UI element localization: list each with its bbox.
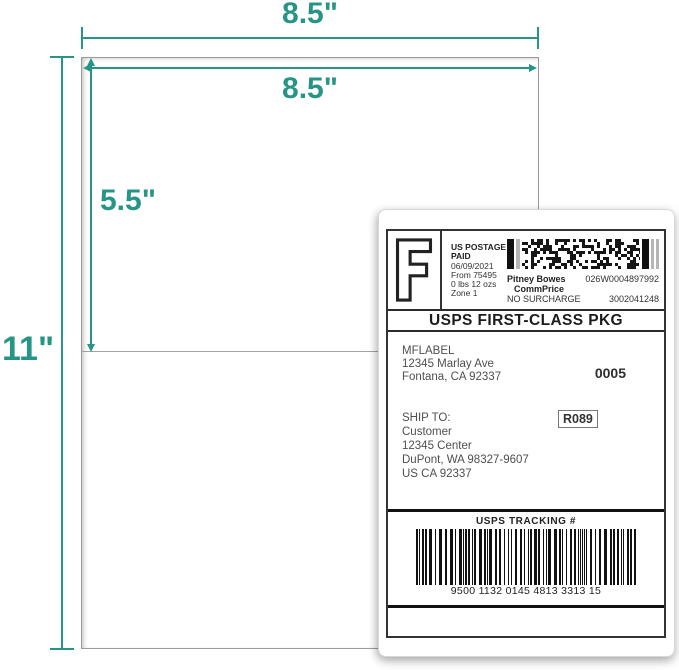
first-class-f-icon <box>388 231 442 309</box>
account-number: 3002041248 <box>609 294 659 304</box>
label-footer-blank <box>388 608 664 636</box>
tracking-barcode <box>416 529 636 585</box>
label-height-dimension-line <box>90 64 92 346</box>
from-street: 12345 Marlay Ave <box>402 358 501 371</box>
indicia-barcode <box>507 239 659 269</box>
meter-number: 026W0004897992 <box>585 274 659 284</box>
from-address: MFLABEL 12345 Marlay Ave Fontana, CA 923… <box>402 345 501 384</box>
service-class-band: USPS FIRST-CLASS PKG <box>388 309 664 332</box>
sheet-width-dimension-line <box>82 37 538 39</box>
barcode-bar <box>516 239 520 269</box>
tracking-number: 9500 1132 0145 4813 3313 15 <box>388 585 664 597</box>
sheet-height-dimension-label: 11" <box>2 330 54 369</box>
tracking-section: USPS TRACKING # 9500 1132 0145 4813 3313… <box>388 509 664 608</box>
meter-info: Pitney Bowes 026W0004897992 CommPrice NO… <box>507 274 659 304</box>
sheet-width-dimension-label: 8.5" <box>82 0 538 31</box>
surcharge-note: NO SURCHARGE <box>507 294 581 304</box>
shipping-label-border: US POSTAGE PAID 06/09/2021 From 75495 0 … <box>386 229 666 638</box>
batch-number: 0005 <box>595 365 626 381</box>
arrowhead-right-icon <box>529 64 537 72</box>
label-width-dimension-label: 8.5" <box>82 72 538 106</box>
label-width-dimension-line <box>88 67 530 69</box>
barcode-bar <box>656 239 659 269</box>
from-city: Fontana, CA 92337 <box>402 371 501 384</box>
label-height-dimension-label: 5.5" <box>100 184 156 218</box>
dimension-tick <box>537 27 539 49</box>
ship-to-city: DuPont, WA 98327-9607 <box>402 453 529 467</box>
arrowhead-down-icon <box>87 344 95 352</box>
barcode-bar <box>642 239 649 269</box>
dimension-tick <box>50 56 74 58</box>
ship-to-country: US CA 92337 <box>402 467 529 481</box>
product-illustration: 8.5" 11" 8.5" 5.5" US POSTAGE PAID <box>0 0 679 670</box>
service-class-label: USPS FIRST-CLASS PKG <box>429 312 623 330</box>
indicia-meter-block: Pitney Bowes 026W0004897992 CommPrice NO… <box>504 231 664 309</box>
ship-to-address: SHIP TO: Customer 12345 Center DuPont, W… <box>402 411 529 481</box>
from-name: MFLABEL <box>402 345 501 358</box>
route-code-badge: R089 <box>558 410 598 428</box>
carrier-name: Pitney Bowes <box>507 274 566 284</box>
sheet-height-dimension-line <box>61 57 63 649</box>
shipping-label-card: US POSTAGE PAID 06/09/2021 From 75495 0 … <box>378 209 675 657</box>
ship-to-name: Customer <box>402 425 529 439</box>
barcode-noise-field <box>522 239 640 269</box>
postage-details: US POSTAGE PAID 06/09/2021 From 75495 0 … <box>442 231 504 309</box>
ship-to-street: 12345 Center <box>402 439 529 453</box>
rate-class: CommPrice <box>507 284 564 294</box>
address-section: MFLABEL 12345 Marlay Ave Fontana, CA 923… <box>388 332 664 509</box>
dimension-tick <box>50 648 74 650</box>
tracking-heading: USPS TRACKING # <box>388 516 664 527</box>
indicia-section: US POSTAGE PAID 06/09/2021 From 75495 0 … <box>388 231 664 309</box>
barcode-bar <box>507 239 514 269</box>
ship-to-heading: SHIP TO: <box>402 411 529 425</box>
postage-zone: Zone 1 <box>451 289 504 298</box>
arrowhead-up-icon <box>87 58 95 66</box>
dimension-tick <box>81 27 83 49</box>
